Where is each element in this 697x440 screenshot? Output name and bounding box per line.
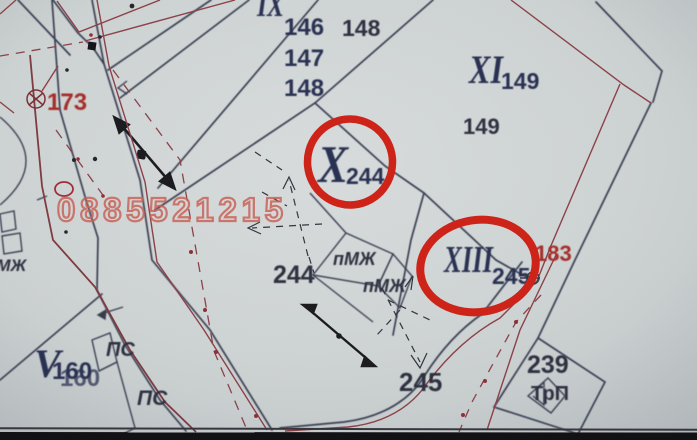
svg-text:173: 173 bbox=[47, 89, 87, 116]
svg-text:183: 183 bbox=[535, 241, 572, 266]
svg-text:пМЖ: пМЖ bbox=[363, 276, 407, 296]
svg-text:244: 244 bbox=[346, 163, 385, 189]
svg-text:245: 245 bbox=[399, 367, 442, 397]
svg-text:239: 239 bbox=[527, 351, 569, 379]
svg-text:XIII: XIII bbox=[443, 239, 494, 281]
svg-text:XI: XI bbox=[467, 47, 504, 92]
svg-text:147: 147 bbox=[284, 45, 324, 72]
svg-text:ПС: ПС bbox=[106, 339, 135, 361]
svg-text:ПС: ПС bbox=[137, 387, 168, 410]
svg-text:X: X bbox=[316, 136, 349, 194]
svg-text:244: 244 bbox=[273, 261, 315, 289]
svg-text:148: 148 bbox=[284, 75, 324, 102]
svg-text:IX: IX bbox=[256, 0, 285, 24]
svg-text:ТрП: ТрП bbox=[531, 383, 569, 405]
svg-text:пМЖ: пМЖ bbox=[333, 249, 377, 269]
svg-text:149: 149 bbox=[501, 68, 539, 94]
svg-text:146: 146 bbox=[284, 14, 324, 41]
svg-text:пМЖ: пМЖ bbox=[0, 256, 28, 275]
svg-text:148: 148 bbox=[342, 15, 381, 41]
svg-text:149: 149 bbox=[463, 114, 500, 139]
svg-text:160: 160 bbox=[60, 365, 100, 392]
